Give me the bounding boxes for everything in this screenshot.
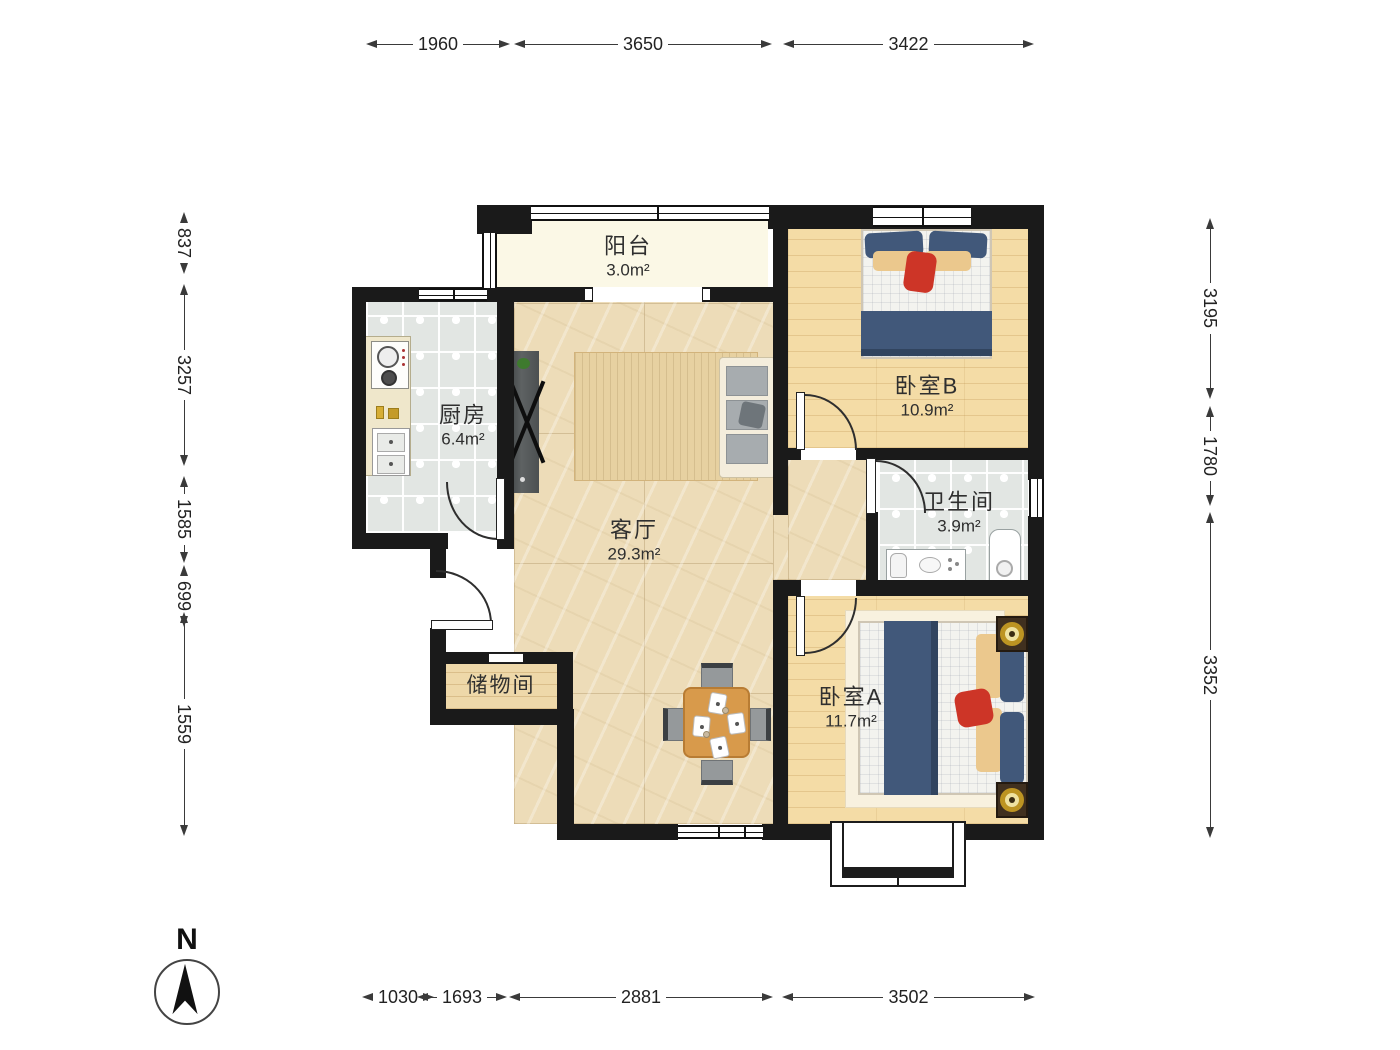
wall xyxy=(430,709,574,725)
dim-right-3352: 3352 xyxy=(1199,512,1221,838)
cabinet-handle-icon xyxy=(520,477,525,482)
north-arrow-icon xyxy=(156,961,214,1019)
wall xyxy=(477,205,532,234)
dim-value: 3422 xyxy=(883,35,933,53)
dim-left-699: 699 xyxy=(173,565,195,612)
dim-left-1585: 1585 xyxy=(173,476,195,563)
sink-basin-2 xyxy=(377,455,405,474)
bed-throw-red xyxy=(902,250,937,294)
bay-window-mullion-icon xyxy=(897,867,899,887)
wall-end-cap xyxy=(703,289,710,300)
room-name: 阳台 xyxy=(604,232,652,260)
floor-plan-canvas: 阳台 3.0m² 厨房 6.4m² 客厅 29.3m² 卧室B 10.9m² 卫… xyxy=(0,0,1400,1050)
dim-right-3195: 3195 xyxy=(1199,218,1221,399)
kitchen-window xyxy=(419,288,487,301)
dim-value: 3352 xyxy=(1201,650,1219,700)
dining-chair-north xyxy=(701,663,733,688)
balcony-side-window xyxy=(482,233,497,288)
dim-value: 1559 xyxy=(175,699,193,749)
room-name: 储物间 xyxy=(467,673,536,699)
vanity-sink xyxy=(919,557,941,573)
plant-icon xyxy=(517,358,530,369)
wall xyxy=(856,448,1044,460)
bed-throw-red xyxy=(953,687,995,729)
cup-icon xyxy=(722,707,729,714)
dim-left-837: 837 xyxy=(173,212,195,268)
room-name: 卫生间 xyxy=(923,488,995,516)
dining-chair-west xyxy=(663,708,684,741)
dim-value: 3195 xyxy=(1201,283,1219,333)
wall xyxy=(773,580,788,826)
entry-door-leaf xyxy=(431,620,493,630)
bay-window xyxy=(830,821,966,887)
dim-bottom-2881: 2881 xyxy=(509,986,773,1008)
wall xyxy=(557,824,678,840)
bed-blanket-blue xyxy=(861,311,992,356)
wall xyxy=(1028,516,1044,840)
dim-bottom-1693: 1693 xyxy=(417,986,507,1008)
dim-right-1780: 1780 xyxy=(1199,406,1221,506)
room-area: 6.4m² xyxy=(439,429,487,449)
room-area: 10.9m² xyxy=(895,400,960,420)
bed-pillow-blue xyxy=(1000,712,1024,784)
compass-circle xyxy=(154,959,220,1025)
spice-box xyxy=(388,408,399,419)
wall xyxy=(866,512,878,582)
dim-bottom-1030: 1030 xyxy=(362,986,415,1008)
dim-top-3422: 3422 xyxy=(783,33,1034,55)
kitchen-label: 厨房 6.4m² xyxy=(439,401,487,449)
lamp-icon xyxy=(1000,622,1024,646)
dim-value: 1693 xyxy=(437,988,487,1006)
dim-left-1559: 1559 xyxy=(173,612,195,836)
kitchen-door-leaf xyxy=(496,478,505,540)
room-area: 3.0m² xyxy=(604,260,652,280)
dim-bottom-3502: 3502 xyxy=(782,986,1035,1008)
bay-window-frame xyxy=(842,821,954,869)
lamp-icon xyxy=(1000,788,1024,812)
balcony-window xyxy=(531,205,769,221)
dim-value: 3502 xyxy=(883,988,933,1006)
wall xyxy=(352,287,366,549)
dim-value: 699 xyxy=(175,576,193,616)
wall xyxy=(1028,205,1044,480)
storage-opening xyxy=(489,653,523,663)
living-room-label: 客厅 29.3m² xyxy=(608,516,661,564)
room-area: 3.9m² xyxy=(923,516,995,536)
balcony-label: 阳台 3.0m² xyxy=(604,232,652,280)
dim-top-1960: 1960 xyxy=(366,33,510,55)
living-room-window xyxy=(678,825,763,839)
dim-value: 1585 xyxy=(175,494,193,544)
shoe-cabinet xyxy=(514,351,539,493)
wall xyxy=(557,652,573,710)
room-name: 厨房 xyxy=(439,401,487,429)
bedroom-b-window xyxy=(873,206,971,227)
wall-end-cap xyxy=(585,289,592,300)
bedroom-a-door-leaf xyxy=(796,596,805,656)
dim-left-3257: 3257 xyxy=(173,284,195,466)
dining-chair-east xyxy=(750,708,771,741)
wall xyxy=(352,533,448,549)
sofa-cushion xyxy=(726,366,768,396)
stove-pot-icon xyxy=(381,370,397,386)
bedroom-b-label: 卧室B 10.9m² xyxy=(895,372,960,420)
room-name: 客厅 xyxy=(608,516,661,544)
dim-value: 1030 xyxy=(373,988,423,1006)
dim-top-3650: 3650 xyxy=(514,33,772,55)
bed-blanket-blue xyxy=(884,621,938,795)
bathroom-window xyxy=(1029,479,1044,517)
wall xyxy=(702,287,774,302)
room-name: 卧室A xyxy=(819,683,884,711)
wall xyxy=(773,205,788,515)
toilet xyxy=(890,553,907,578)
compass: N xyxy=(150,925,224,1025)
wall xyxy=(762,824,834,840)
wall xyxy=(430,628,446,655)
room-name: 卧室B xyxy=(895,372,960,400)
storage-label: 储物间 xyxy=(467,673,536,699)
utensil-rack xyxy=(376,406,384,419)
faucet-icon xyxy=(948,558,952,562)
room-area: 29.3m² xyxy=(608,544,661,564)
sofa-cushion xyxy=(726,434,768,464)
sink-drain-icon xyxy=(389,440,393,444)
stove-knob-icon xyxy=(402,349,405,352)
bedroom-b-door-leaf xyxy=(796,392,805,450)
throw-pillow xyxy=(738,401,766,429)
dim-value: 3257 xyxy=(175,350,193,400)
dim-value: 3650 xyxy=(618,35,668,53)
wall xyxy=(856,580,1044,596)
washer-door-icon xyxy=(996,560,1013,577)
dim-value: 1780 xyxy=(1201,431,1219,481)
stove-burner-icon xyxy=(377,346,399,368)
bedroom-a-label: 卧室A 11.7m² xyxy=(819,683,884,731)
entry-door-arc xyxy=(436,570,492,624)
plate xyxy=(727,712,747,735)
dining-chair-south xyxy=(701,760,733,785)
living-passage-floor xyxy=(773,513,788,580)
cup-icon xyxy=(703,731,710,738)
hallway-floor xyxy=(788,460,866,580)
bathroom-door-leaf xyxy=(866,458,876,514)
dim-value: 2881 xyxy=(616,988,666,1006)
north-label: N xyxy=(150,925,224,955)
dim-value: 1960 xyxy=(413,35,463,53)
dim-value: 837 xyxy=(175,223,193,263)
room-area: 11.7m² xyxy=(819,711,884,731)
wall xyxy=(557,725,574,826)
bathroom-label: 卫生间 3.9m² xyxy=(923,488,995,536)
